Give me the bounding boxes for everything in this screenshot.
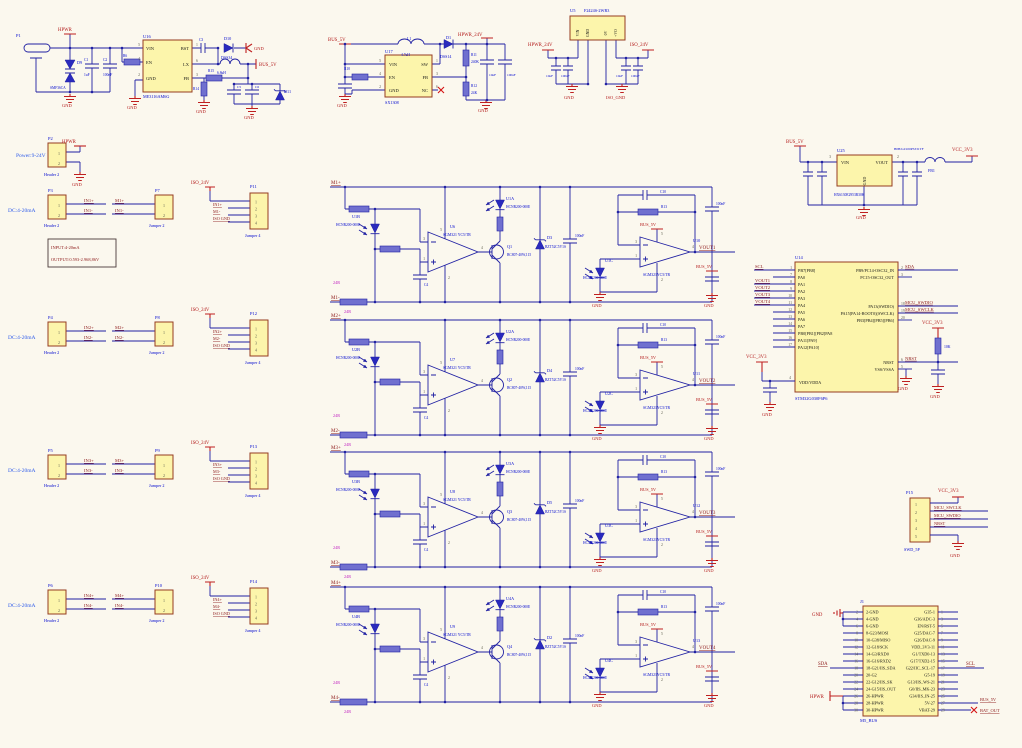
ch3-bus-22: BUS_5V <box>640 487 657 492</box>
u16-n6: 6 <box>196 59 198 63</box>
u14-net-SDA: SDA <box>905 264 915 269</box>
row2-dc-0: DC:4-20mA <box>8 335 36 341</box>
ch1-vout-21: VOUT1 <box>699 246 716 251</box>
ch3-n2-37: 2 <box>661 543 663 547</box>
row1-n4-22: 4 <box>255 221 257 226</box>
h1-net-sda: SDA <box>818 662 828 667</box>
u14-net-VOUT2: VOUT2 <box>755 285 771 290</box>
ch2-n2-37: 2 <box>661 411 663 415</box>
ch1-ua-6: U1A <box>506 196 514 201</box>
ch1-hcnr-2: HCNR200-000E <box>336 223 361 227</box>
ch3-gnd-25: GND <box>704 568 714 573</box>
u17-n5: 5 <box>379 59 381 63</box>
h1-rpin-3: G36/ADC-3 <box>914 617 935 622</box>
u14-pin-name-16: PA11[PA9] <box>798 338 817 343</box>
gnd-8: GND <box>856 215 866 220</box>
p15-net-nrst: NRST <box>934 521 946 526</box>
u5-pin-0v: 0V <box>604 30 608 35</box>
u16-pin-fb: FB <box>183 76 189 81</box>
u14-pin-name-11: PA4 <box>798 303 806 308</box>
u16-n3: 3 <box>196 73 198 77</box>
resistor <box>935 338 941 354</box>
row3-mp-10: M3+ <box>115 458 124 463</box>
ch2-op1v-4: SGM321 YC5/TR <box>443 366 471 370</box>
ch4-op1-3: U9 <box>450 624 455 629</box>
u25-pin-gnd: GND <box>862 177 867 186</box>
ch3-d-10: D5 <box>547 500 552 505</box>
h1-rnum-17: 17 <box>941 667 945 671</box>
ch4-gnd-25: GND <box>704 703 714 708</box>
row4-jp2-4: Jumper 2 <box>149 618 164 623</box>
h1-rpin-17: G22/IIC_SCL-17 <box>906 666 935 671</box>
row4-n1-19: 1 <box>255 595 257 600</box>
u14-pin-name-6: NRST <box>883 360 894 365</box>
row4-n1-17: 1 <box>163 598 165 603</box>
h1-lpin-22: 22-G12/IIS_SK <box>866 680 893 685</box>
ch2-gnd-25: GND <box>704 436 714 441</box>
ch3-n1-34: 1 <box>635 519 637 523</box>
resistor <box>463 50 469 66</box>
ch4-n2-37: 2 <box>661 678 663 682</box>
u16-pin-vin: VIN <box>146 46 155 51</box>
h1-lnum-26: 26 <box>854 695 858 699</box>
ch1-n4-35: 4 <box>692 245 694 249</box>
h1-lpin-14: 14-G3/RXD0 <box>866 652 889 657</box>
u25-pin-vin: VIN <box>841 160 850 165</box>
h1-rpin-21: G13/IIS_WS-21 <box>908 680 935 685</box>
ch4-op2v-20: SGM321YC5/TR <box>643 673 670 677</box>
gnd-11: GND <box>930 394 940 399</box>
gnd-1: GND <box>62 103 72 108</box>
ch1-n1-34: 1 <box>635 254 637 258</box>
h1-rpin-13: G1/TXD0-13 <box>912 652 935 657</box>
r17-val: 10K <box>944 345 951 349</box>
row3-inm-9: IN3- <box>84 468 93 473</box>
h1-lpin-2: 2-GND <box>866 610 879 615</box>
r11-val: 240K <box>471 60 479 64</box>
row1-n1-17: 1 <box>163 203 165 208</box>
ch1-op1-3: U6 <box>450 224 455 229</box>
u17-n4: 4 <box>379 72 381 76</box>
u14-net-VOUT1: VOUT1 <box>755 278 771 283</box>
u14-pin-name-20: PB3[PB4][PB5][PB6] <box>857 318 895 323</box>
u17-pin-vin: VIN <box>389 62 398 67</box>
row1-p-1: P3 <box>48 188 54 193</box>
ch2-d-10: D4 <box>547 368 553 373</box>
u14-pin-num-3: 3 <box>901 273 903 277</box>
h1-lpin-20: 20-G2 <box>866 673 877 678</box>
ch2-n2-32: 2 <box>448 409 450 413</box>
ch4-r24-15: 24R <box>344 709 351 714</box>
ch3-hcnr-7: HCNR200-000E <box>506 470 531 474</box>
u5-c4-val: 100nF <box>631 74 640 78</box>
h1-rpin-1: G35-1 <box>924 610 935 615</box>
h1-lnum-2: 2 <box>856 611 858 615</box>
u14-pin-name-12: PA5 <box>798 310 805 315</box>
p15-ref: P15 <box>906 490 914 495</box>
power-range-label: Power:9-24V <box>16 153 46 159</box>
h1-lnum-24: 24 <box>854 688 858 692</box>
l0-val: 6.8uH <box>217 71 226 75</box>
l1-val: 4.7uH <box>401 53 410 57</box>
ch3-uc-17: U3C <box>605 523 613 528</box>
p15-n4: 4 <box>915 526 917 531</box>
row3-jp2-4: Jumper 2 <box>149 483 164 488</box>
h1-rnum-13: 13 <box>941 653 945 657</box>
row3-n4-22: 4 <box>255 481 257 486</box>
row2-n2-18: 2 <box>163 340 165 345</box>
h1-rnum-19: 19 <box>941 674 945 678</box>
gnd-4: GND <box>244 115 254 120</box>
resistor <box>463 82 469 96</box>
u14-pin-num-14: 14 <box>788 322 792 326</box>
row1-isognd-14: ISO GND <box>213 216 230 221</box>
ch1-mm-16: M1- <box>331 296 340 301</box>
d1-ref: D1 <box>446 35 451 40</box>
ch4-hcnr-2: HCNR200-000E <box>336 623 361 627</box>
h1-net-gnd: GND <box>812 613 823 618</box>
row4-j2-3: P10 <box>155 583 163 588</box>
row2-inm-9: IN2- <box>84 335 93 340</box>
ch1-bus-23: BUS_5V <box>696 264 713 269</box>
u14-pin-num-13: 13 <box>788 315 792 319</box>
ch3-capv-13: 100nF <box>716 467 725 471</box>
h1-lpin-10: 10-G38/MISO <box>866 638 890 643</box>
row1-hdr-2: Header 2 <box>44 223 59 228</box>
row2-jp2-4: Jumper 2 <box>149 350 164 355</box>
row4-iso-7: ISO_24V <box>191 576 210 581</box>
h1-rpin-11: VDD_3V3-11 <box>911 645 935 650</box>
ch4-n2-32: 2 <box>448 676 450 680</box>
ch4-n5-36: 5 <box>661 632 663 636</box>
hpwr-port-2: HPWR <box>62 140 77 145</box>
spec-line-1: INPUT:4-20mA <box>51 245 80 250</box>
u17-pin-gnd: GND <box>389 88 399 93</box>
row4-mm-13: M4- <box>213 604 221 609</box>
header-2-connector <box>48 143 66 167</box>
row2-mp-10: M2+ <box>115 325 124 330</box>
ch4-op1v-4: SGM321 YC5/TR <box>443 633 471 637</box>
u17-pin-nc: NC <box>422 88 428 93</box>
ch1-bus-22: BUS_5V <box>640 222 657 227</box>
u14-pin-name-3: PC15-OSC32_OUT <box>860 275 894 280</box>
ch1-op2-19: U10 <box>693 238 700 243</box>
p15-n3: 3 <box>915 518 917 523</box>
row4-n4-22: 4 <box>255 616 257 621</box>
u17-ref: U17 <box>385 49 393 54</box>
swd-5p-connector <box>910 498 930 542</box>
r14-ref: R14 <box>193 87 199 91</box>
h1-lpin-18: 18-G21/IIS_SDA <box>866 666 896 671</box>
ch2-n4-30: 4 <box>481 379 483 383</box>
h1-lnum-10: 10 <box>854 639 858 643</box>
ch1-r24-14: 24R <box>333 280 340 285</box>
row3-n1-15: 1 <box>58 463 60 468</box>
u17-pin-en: EN <box>389 75 396 80</box>
ch4-op2-19: U13 <box>693 638 700 643</box>
ch3-q-8: Q3 <box>507 509 512 514</box>
ch1-c4-5: C4 <box>424 283 428 287</box>
row3-inm-11: IN3- <box>115 468 124 473</box>
ch2-hcnr-18: HCNR200-000E <box>583 409 608 413</box>
r15-ref: R15 <box>208 69 214 73</box>
u14-pin-num-10: 10 <box>788 294 792 298</box>
h1-rnum-25: 25 <box>941 695 945 699</box>
ch3-r13-27: R13 <box>661 470 667 474</box>
vcc3v3-port-3: VCC_3V3 <box>922 321 943 326</box>
ch3-n5-36: 5 <box>661 497 663 501</box>
h1-rpin-27: 5V-27 <box>925 701 935 706</box>
ch3-n2-32: 2 <box>448 541 450 545</box>
row3-n2-20: 2 <box>255 467 257 472</box>
gnd-13: GND <box>950 553 960 558</box>
row2-p-1: P4 <box>48 315 54 320</box>
ch3-ua-6: U3A <box>506 461 514 466</box>
ch3-n4-35: 4 <box>692 510 694 514</box>
row4-n3-21: 3 <box>255 609 257 614</box>
ch3-n5-31: 5 <box>440 493 442 497</box>
u5-c3-val: 10uF <box>616 74 623 78</box>
ch4-q-8: Q4 <box>507 644 513 649</box>
p1-ref: P1 <box>16 33 21 38</box>
ch2-r13-27: R13 <box>661 338 667 342</box>
ch2-mp-0: M2+ <box>331 314 341 319</box>
ch4-ub-1: U4B <box>352 614 360 619</box>
ch2-n5-36: 5 <box>661 365 663 369</box>
ch1-r24-15: 24R <box>344 309 351 314</box>
row4-n2-16: 2 <box>58 608 60 613</box>
isognd-1: ISO_GND <box>606 95 626 100</box>
u16-pin-en: EN <box>146 60 153 65</box>
ch2-hcnr-2: HCNR200-000E <box>336 356 361 360</box>
gnd-12: GND <box>898 386 908 391</box>
h1-rnum-23: 23 <box>941 688 945 692</box>
ch2-n3-33: 3 <box>635 373 637 377</box>
u14-pin-name-9: PA2 <box>798 289 805 294</box>
u14-pin-name-1: PB7[PB8] <box>798 268 816 273</box>
u17-n6: 6 <box>436 85 438 89</box>
ch3-c10-26: C10 <box>660 455 666 459</box>
u17-n2: 2 <box>379 85 381 89</box>
schematic-page: P1HPWRD9SMF36CAC11uFC2100nFR6U16ME3116AM… <box>0 0 1022 748</box>
h1-net-batout: BAT_OUT <box>980 708 1000 713</box>
ch3-op1v-4: SGM321 YC5/TR <box>443 498 471 502</box>
ch3-r24-15: 24R <box>344 574 351 579</box>
ch1-d-10: D3 <box>547 235 552 240</box>
u16-n2: 2 <box>138 73 140 77</box>
u14-pin-name-7: PA0 <box>798 275 805 280</box>
u14-pin-name-17: PA12[PA10] <box>798 345 820 350</box>
ch4-uc-17: U4C <box>605 658 613 663</box>
h1-lpin-8: 8-G23/MOSI <box>866 631 889 636</box>
row2-n3-21: 3 <box>255 341 257 346</box>
h1-lnum-20: 20 <box>854 674 858 678</box>
ch2-bus-23: BUS_5V <box>696 397 713 402</box>
row2-iso-7: ISO_24V <box>191 308 210 313</box>
ch1-mp-0: M1+ <box>331 181 341 186</box>
vcc3v3-port-1: VCC_3V3 <box>952 148 973 153</box>
ch3-n4-30: 4 <box>481 511 483 515</box>
ch4-r13-27: R13 <box>661 605 667 609</box>
u14-pin-name-8: PA1 <box>798 282 805 287</box>
ch2-n5-31: 5 <box>440 361 442 365</box>
h1-lpin-26: 26-HPWR <box>866 694 884 699</box>
ch2-r24-14: 24R <box>333 413 340 418</box>
bus5v-port-2: BUS_5V <box>328 38 346 43</box>
u14-pin-num-12: 12 <box>788 308 792 312</box>
row4-isognd-14: ISO GND <box>213 611 230 616</box>
ch3-r24-14: 24R <box>333 545 340 550</box>
row1-iso-7: ISO_24V <box>191 181 210 186</box>
row1-mp-10: M1+ <box>115 198 124 203</box>
ch1-q-8: Q1 <box>507 244 512 249</box>
u16-ref: U16 <box>143 34 151 39</box>
ch1-capv-12: 100nF <box>575 234 584 238</box>
u17-n1: 1 <box>436 59 438 63</box>
ch2-capv-13: 100nF <box>716 335 725 339</box>
row3-jp4-6: Jumper 4 <box>245 493 261 498</box>
h1-lnum-16: 16 <box>854 660 858 664</box>
ch1-n5-36: 5 <box>661 232 663 236</box>
row3-n3-21: 3 <box>255 474 257 479</box>
c5-ref: C5 <box>237 85 241 89</box>
u14-pin-name-15: PB0[PB1][PB2]PA8 <box>798 331 832 336</box>
u14-val: STM32G030F6P6 <box>795 396 828 401</box>
u14-net-VOUT4: VOUT4 <box>755 299 771 304</box>
schematic-canvas: P1HPWRD9SMF36CAC11uFC2100nFR6U16ME3116AM… <box>0 0 1022 748</box>
r12-ref: R12 <box>471 84 477 88</box>
row2-mm-13: M2- <box>213 336 221 341</box>
r11-ref: R11 <box>471 53 477 57</box>
gnd-arrow-label: GND <box>254 46 264 51</box>
p2-n1: 1 <box>58 151 60 156</box>
h1-lpin-12: 12-G18/SCK <box>866 645 888 650</box>
p15-n2: 2 <box>915 510 917 515</box>
row1-jp4-6: Jumper 4 <box>245 233 261 238</box>
d9-val: SMF36CA <box>50 86 66 90</box>
row1-dc-0: DC:4-20mA <box>8 208 36 214</box>
row3-n1-17: 1 <box>163 463 165 468</box>
fb1-val: B0B/GZ100PS331TF <box>894 147 924 151</box>
row2-hdr-2: Header 2 <box>44 350 59 355</box>
u16-n1: 1 <box>196 43 198 47</box>
h1-lpin-30: 30-HPWR <box>866 708 884 713</box>
ch1-uc-17: U1C <box>605 258 613 263</box>
ch2-op2v-20: SGM321YC5/TR <box>643 406 670 410</box>
row2-inp-12: IN2+ <box>213 329 223 334</box>
row1-inp-8: IN1+ <box>84 198 94 203</box>
ch1-zv-11: BZT52C5V1S <box>545 245 566 249</box>
ch1-gnd-24: GND <box>592 303 602 308</box>
ch1-ub-1: U1B <box>352 214 360 219</box>
vcc3v3-port-4: VCC_3V3 <box>938 489 959 494</box>
row1-j2-3: P7 <box>155 188 161 193</box>
h1-lpin-16: 16-G16/RXD2 <box>866 659 891 664</box>
ch3-hcnr-18: HCNR200-000E <box>583 541 608 545</box>
ch2-ua-6: U2A <box>506 329 514 334</box>
ch1-n2-37: 2 <box>661 278 663 282</box>
row3-j4-5: P13 <box>250 444 258 449</box>
u16-n5: 5 <box>138 43 140 47</box>
h1-rnum-5: 5 <box>941 625 943 629</box>
gnd-10: GND <box>762 412 772 417</box>
row1-n2-16: 2 <box>58 213 60 218</box>
h1-rnum-9: 9 <box>941 639 943 643</box>
u25-pin-vout: VOUT <box>876 160 889 165</box>
row4-n2-20: 2 <box>255 602 257 607</box>
ch1-hcnr-18: HCNR200-000E <box>583 276 608 280</box>
fb1-ref: FB1 <box>928 168 935 173</box>
ch2-capv-12: 100nF <box>575 367 584 371</box>
c8-val: 100nF <box>507 73 516 77</box>
ch1-n2-32: 2 <box>448 276 450 280</box>
h1-rpin-5: EN/RST-5 <box>917 624 935 629</box>
h1-rpin-7: G25/DAC-7 <box>914 631 935 636</box>
row3-n1-19: 1 <box>255 460 257 465</box>
hpwr24v-port-2: HPWR_24V <box>528 43 553 48</box>
row1-n2-20: 2 <box>255 207 257 212</box>
u14-pin-num-6: 6 <box>901 358 903 362</box>
ch2-gnd-24: GND <box>592 436 602 441</box>
h1-rnum-29: 29 <box>941 709 945 713</box>
row4-n2-18: 2 <box>163 608 165 613</box>
row2-j2-3: P8 <box>155 315 161 320</box>
row3-dc-0: DC:4-20mA <box>8 468 36 474</box>
u16-n4: 4 <box>138 57 140 61</box>
h1-lnum-28: 28 <box>854 702 858 706</box>
hpwr24v-port-1: HPWR_24V <box>458 33 483 38</box>
u14-pin-num-2: 2 <box>901 266 903 270</box>
ch2-r24-15: 24R <box>344 442 351 447</box>
p15-n1: 1 <box>915 502 917 507</box>
p2-val: Header 2 <box>44 172 59 177</box>
u14-pin-num-15: 15 <box>788 329 792 333</box>
ch4-hcnr-7: HCNR200-000E <box>506 605 531 609</box>
h1-lnum-4: 4 <box>856 618 858 622</box>
l1-ref: L1 <box>407 37 411 41</box>
h1-net-bus5v: BUS_5V <box>980 697 997 702</box>
row1-n1-15: 1 <box>58 203 60 208</box>
row4-inm-11: IN4- <box>115 603 124 608</box>
row4-inp-8: IN4+ <box>84 593 94 598</box>
row3-isognd-14: ISO GND <box>213 476 230 481</box>
p15-net-swclk: MCU_SWCLK <box>934 505 962 510</box>
h1-lnum-6: 6 <box>856 625 858 629</box>
row4-p-1: P6 <box>48 583 54 588</box>
u5-pin-vin: VIN <box>576 29 580 36</box>
vcc3v3-port-2: VCC_3V3 <box>746 355 767 360</box>
d10-ref: D10 <box>224 36 231 41</box>
u5-c2-val: 100nF <box>561 74 570 78</box>
u25-n2: 2 <box>897 155 899 159</box>
ch1-n1-29: 1 <box>423 257 425 261</box>
h1-rpin-23: G0/IIS_MK-23 <box>909 687 935 692</box>
h1-net-scl: SCL <box>966 662 975 667</box>
u14-pin-num-17: 17 <box>788 343 792 347</box>
ch2-c4-5: C4 <box>424 416 428 420</box>
ch3-hcnr-2: HCNR200-000E <box>336 488 361 492</box>
ch4-n5-31: 5 <box>440 628 442 632</box>
d1-val: DSS14 <box>440 54 451 59</box>
u17-pin-fb: FB <box>422 75 428 80</box>
bus5v-port-1: BUS_5V <box>259 63 277 68</box>
row2-j4-5: P12 <box>250 311 257 316</box>
ch4-capv-12: 100nF <box>575 634 584 638</box>
u14-pin-num-8: 8 <box>790 280 792 284</box>
ch3-bus-23: BUS_5V <box>696 529 713 534</box>
ch4-c4-5: C4 <box>424 683 428 687</box>
ch3-gnd-24: GND <box>592 568 602 573</box>
